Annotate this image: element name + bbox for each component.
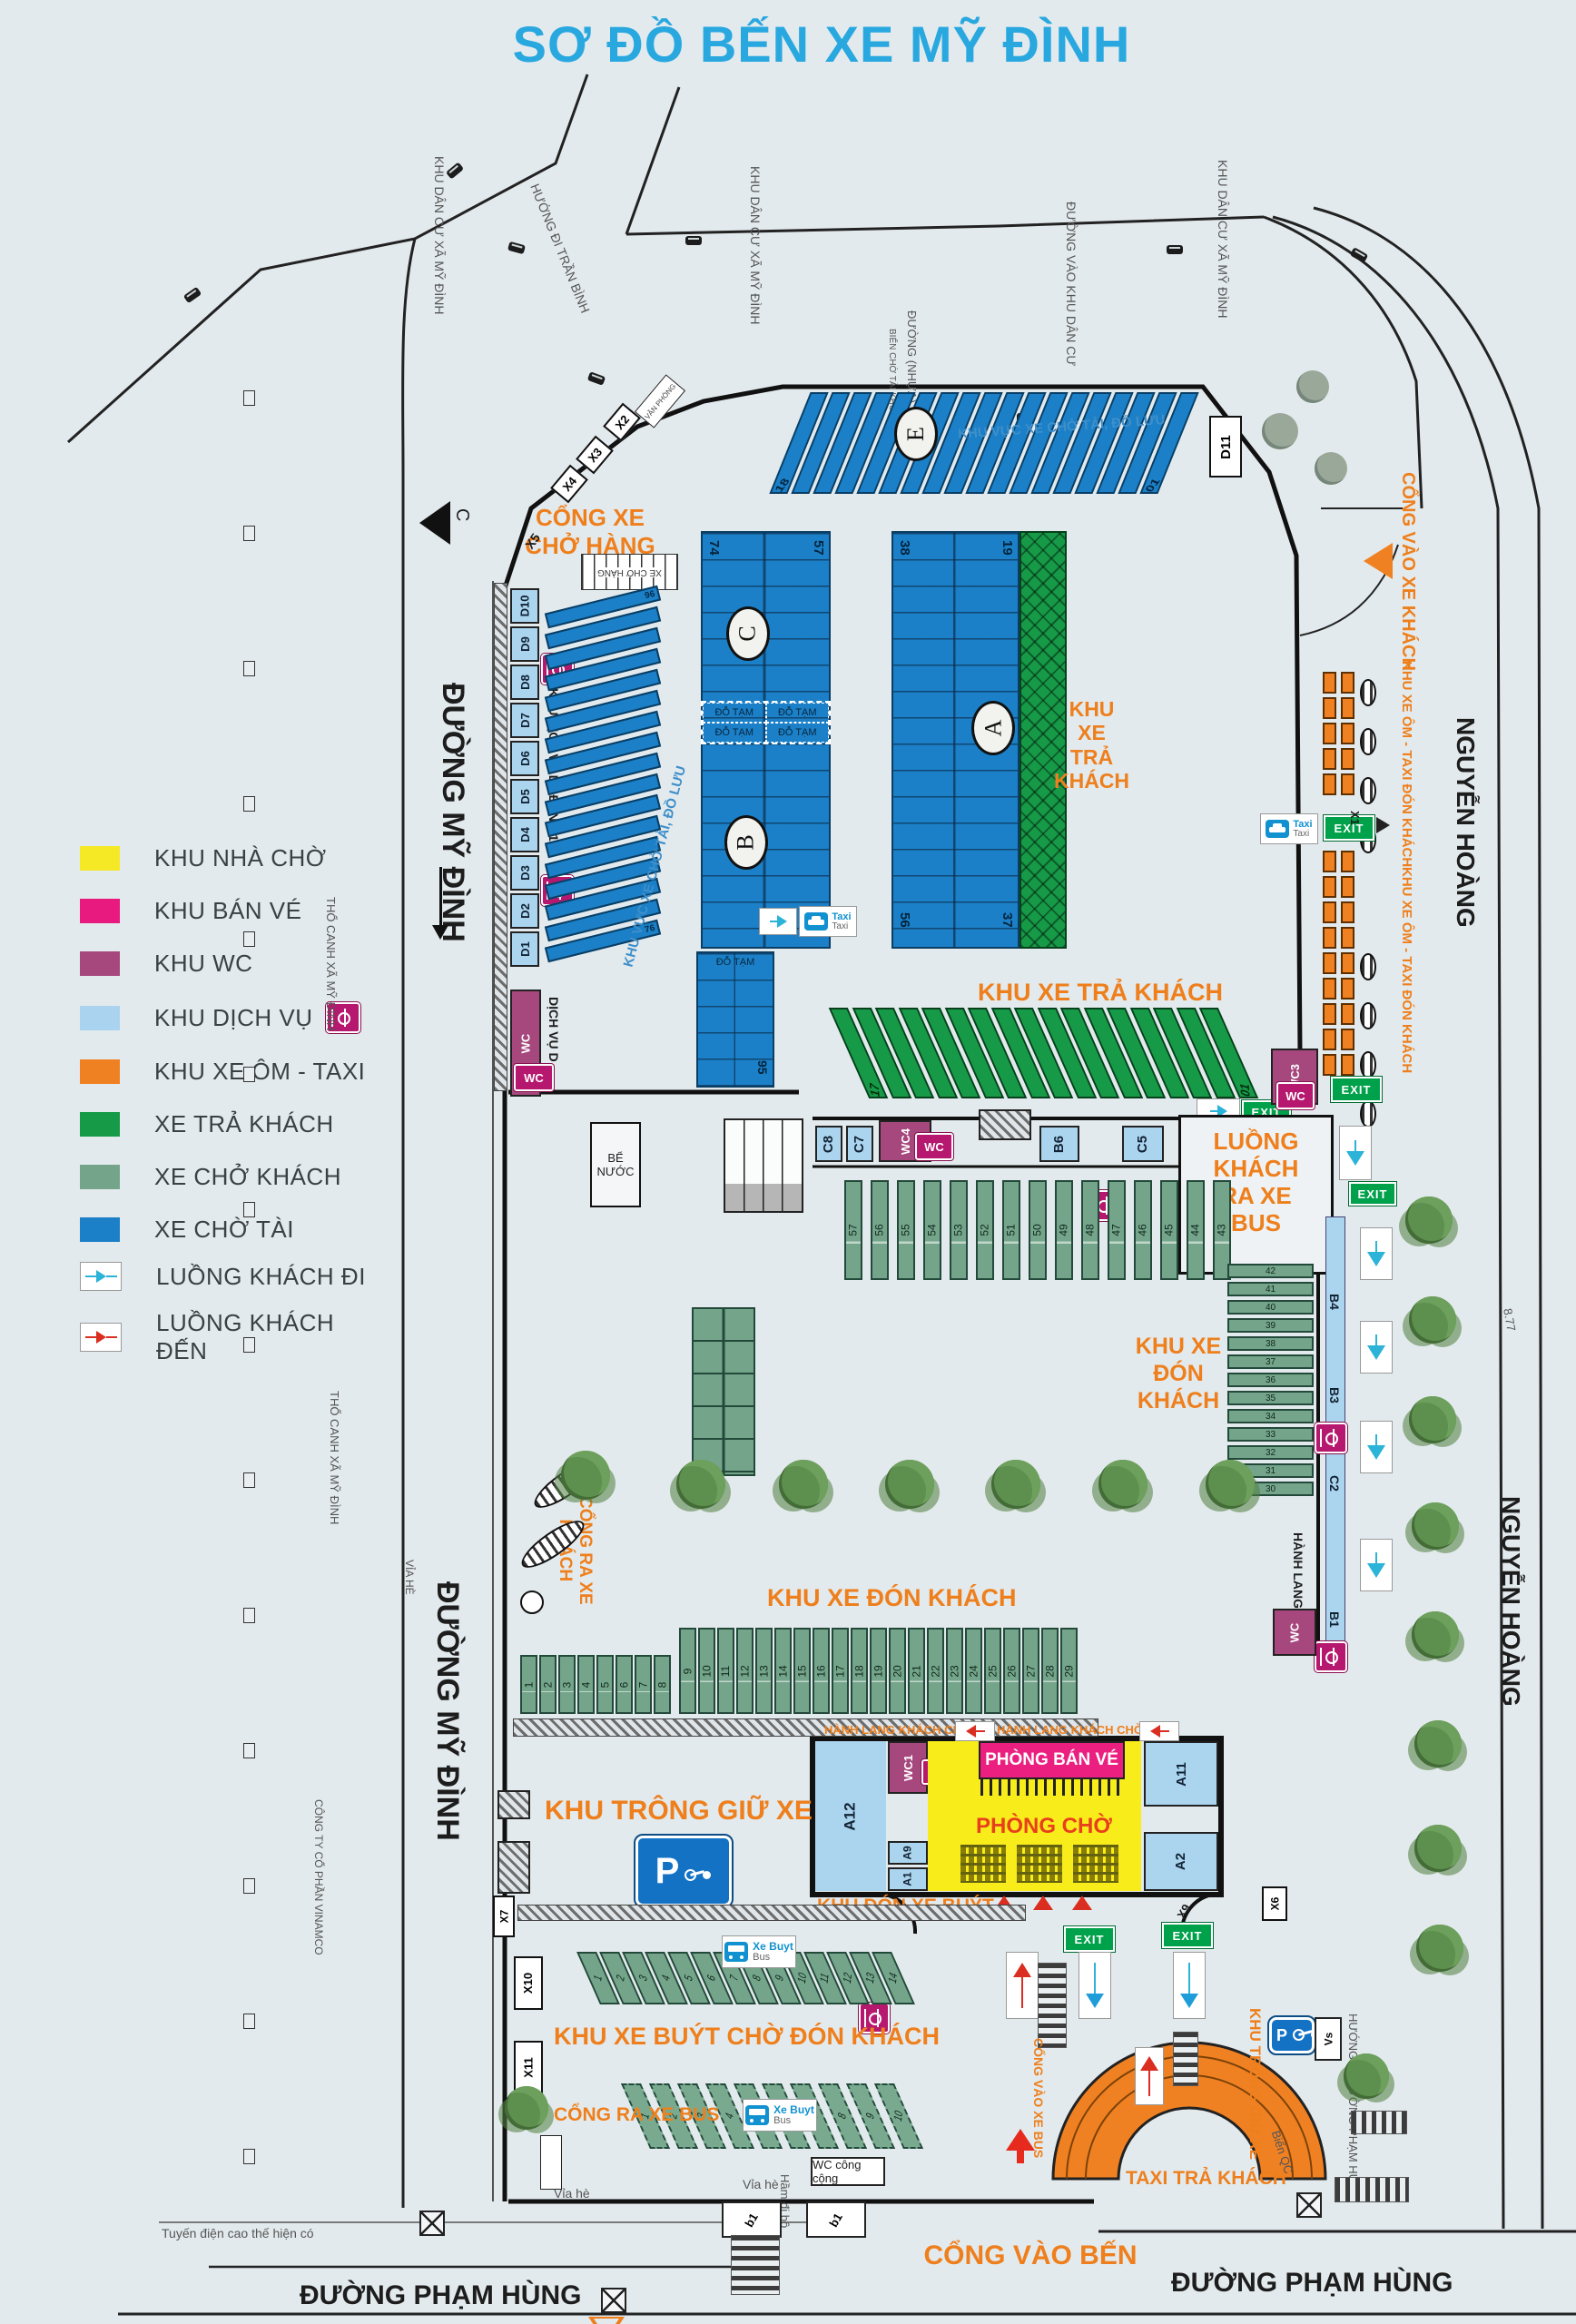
shed-grid [724,1118,803,1213]
wait-stall: 44 [1187,1180,1205,1280]
north-arrow-icon [419,501,450,545]
cargo-stalls: XE CHỞ HÀNG [581,554,678,590]
service-booth: D9 [510,626,539,662]
zone-circle-e: E [894,407,938,461]
tree-icon [505,2086,548,2130]
legend-item: XE CHỞ KHÁCH [80,1163,379,1191]
legend-swatch-xe-tra-khach [80,1112,120,1137]
gate-xbox [419,2211,445,2236]
wait-stall: 42 [1227,1264,1314,1278]
exit-arrow [1376,817,1390,833]
crosswalk [1335,2177,1409,2202]
seat-rows [1073,1845,1118,1883]
wc-badge: WC [514,1064,554,1091]
wait-stall: 32 [1227,1445,1314,1460]
cargo-gate-label: CỔNG XE CHỞ HÀNG [486,504,694,560]
legend-item: LUỒNG KHÁCH ĐI [80,1262,379,1291]
taxi-rank-bottom [1321,849,1357,1080]
tree-icon [561,1451,610,1500]
ticket-hall: PHÒNG BÁN VÉ [979,1741,1125,1779]
flow-go-marker-v [1360,1227,1393,1280]
flow-go-icon [80,1262,122,1291]
bus-icon [724,1942,748,1962]
legend-item: LUỒNG KHÁCH ĐẾN [80,1309,379,1365]
pickup-stall: 19 [870,1628,887,1714]
legend-swatch-khu-ban-ve [80,899,120,923]
tree-icon [1414,1720,1462,1768]
vs-box: Vs [1315,2017,1342,2061]
taxi-slot [1341,773,1354,795]
wait-stall: 38 [1227,1336,1314,1351]
pickup-stall: 9 [679,1628,696,1714]
pickup-stall: 10 [698,1628,715,1714]
street-asphalt: ĐƯỜNG (NHỰA) [905,310,919,403]
seat-rows [960,1845,1006,1883]
main-gate-label: CỔNG VÀO BẾN [917,2240,1144,2271]
exit-badge: EXIT [1064,1926,1115,1952]
wait-stall: 50 [1029,1180,1047,1280]
pickup-stall: 8 [654,1655,671,1714]
pickup-stall: 21 [908,1628,925,1714]
drop-zone-label-stack: KHU XE TRẢ KHÁCH [1049,697,1135,793]
kiosk-hatch [979,1109,1031,1140]
street-res-road: ĐƯỜNG VÀO KHU DÂN CƯ [1064,202,1079,366]
booth-b1: B1 [1327,1611,1342,1628]
taxi-slot [1341,978,1354,1000]
wait-stall: 41 [1227,1282,1314,1296]
wait-stall: 54 [923,1180,941,1280]
legend-item: KHU XE ÔM - TAXI [80,1058,379,1086]
pickup-stall: 12 [736,1628,754,1714]
entry-arrow [1006,2129,1035,2163]
sidewalk-label: Vỉa hè [554,2186,590,2201]
tree-icon [1414,1825,1462,1872]
wait-stall: 45 [1160,1180,1178,1280]
service-booth: D6 [510,741,539,776]
xeom-taxi-label-2: KHU XE ÔM - TAXI ĐÓN KHÁCH [1399,867,1414,1073]
gate-x10: X10 [514,1956,543,2010]
moto-park-label-right: KHU TRÔNG GIỮ XE [1246,2008,1264,2160]
booth-b6: B6 [1039,1126,1079,1162]
flow-come-marker [1139,1721,1179,1741]
taxi-slot [1341,927,1354,949]
tree-icon [676,1460,725,1509]
legend-item: XE TRẢ KHÁCH [80,1110,379,1138]
power-line-label: Tuyến điện cao thế hiện có [162,2226,314,2240]
street-my-dinh-2: ĐƯỜNG MỸ ĐÌNH [429,1581,465,1841]
platform-hatch [517,1905,1026,1921]
utility-poles [243,390,255,2164]
taxi-slot [1323,697,1336,719]
street-residential-2: KHU DÂN CƯ XÃ MỸ ĐÌNH [748,166,763,325]
vinamco-label: CÔNG TY CỔ PHẦN VINAMCO [312,1799,325,1955]
bus-sign: Xe BuytBus [722,1935,796,1968]
gate-x7: X7 [493,1896,515,1937]
gate-in-coach-arrow [1364,543,1393,579]
exit-badge: EXIT [1162,1923,1213,1948]
street-pham-hung-right: ĐƯỜNG PHẠM HÙNG [1171,2268,1453,2299]
booth-c8: C8 [815,1126,842,1162]
do-tam-label: ĐỖ TẠM [698,953,773,968]
tree-icon [1412,1611,1459,1659]
public-wc-box: WC công cộng [811,2157,885,2186]
street-nguyen-hoang-2: NGUYỄN HOÀNG [1496,1496,1525,1707]
booth-b3: B3 [1327,1387,1342,1403]
moto-parking-strip [1360,679,1376,1128]
legend-swatch-khu-wc [80,951,120,976]
north-c-label: C [451,508,472,521]
tree-icon [1409,1396,1456,1443]
wait-stall: 33 [1227,1427,1314,1442]
street-residential-1: KHU DÂN CƯ XÃ MỸ ĐÌNH [432,156,447,315]
wall-kiosk [497,1841,530,1894]
seat-rows [1017,1845,1062,1883]
taxi-slot [1341,876,1354,898]
block-cb-num-57: 57 [811,540,826,556]
taxi-slot [1323,1029,1336,1050]
flow-come-marker [955,1721,995,1741]
wc-badge: WC [915,1133,953,1160]
tree-icon [1412,1502,1459,1550]
drop-zone-label-line: KHU XE TRẢ KHÁCH [978,979,1223,1007]
do-tam-cell: ĐỖ TẠM [703,703,766,723]
taxi-slot [1341,672,1354,694]
d-service-column: D10D9D8D7D6D5D4D3D2D1 [510,588,539,970]
pickup-row-9-29: 9101112131415161718192021222324252627282… [679,1628,1079,1714]
corridor-label-side: HÀNH LANG [1291,1532,1305,1609]
wait-stall: 53 [950,1180,968,1280]
wait-stall: 48 [1081,1180,1099,1280]
block-a-num-19: 19 [1000,540,1015,556]
gate-xbox [1296,2192,1322,2218]
wait-stall: 39 [1227,1318,1314,1333]
flow-go-marker-v [1360,1421,1393,1473]
taxi-slot [1323,927,1336,949]
street-pham-hung-left: ĐƯỜNG PHẠM HÙNG [300,2280,581,2311]
booth-c2: C2 [1327,1475,1342,1492]
wait-stall: 37 [1227,1354,1314,1369]
car-icon [685,236,702,245]
tree-icon [779,1460,828,1509]
pickup-stall: 26 [1003,1628,1020,1714]
pickup-row-1-8: 12345678 [520,1655,673,1714]
pickup-zone-label-line: KHU XE ĐÓN KHÁCH [767,1584,1017,1612]
legend-swatch-khu-dich-vu [80,1006,120,1030]
room-a9: A9 [888,1841,928,1865]
wait-stall: 36 [1227,1373,1314,1387]
taxi-slot [1323,851,1336,872]
field-label-2: THỔ CANH XÃ MỸ ĐÌNH [328,1391,341,1524]
pickup-stall: 6 [616,1655,633,1714]
zone-circle-b: B [724,815,768,870]
pickup-stall: 1 [520,1655,537,1714]
wait-stall: 46 [1134,1180,1152,1280]
taxi-drop-label: TAXI TRẢ KHÁCH [1126,2168,1286,2190]
wc-side-block: WC [1273,1609,1316,1656]
wait-stall: 47 [1108,1180,1126,1280]
booth-c7: C7 [846,1126,873,1162]
moto-park-label: KHU TRÔNG GIỮ XE [545,1796,813,1827]
gate-x6: X6 [1262,1886,1287,1921]
west-wall-hatch [494,583,507,1091]
taxi-sign: TaxiTaxi [799,906,857,937]
pickup-stall: 3 [558,1655,576,1714]
zone-circle-a: A [971,701,1015,755]
taxi-slot [1341,1003,1354,1025]
do-tam-cell: ĐỖ TẠM [703,723,766,743]
taxi-slot [1341,748,1354,770]
moto-parking-sign: P [1269,2017,1315,2053]
door-mark [1072,1896,1092,1910]
b1-box: b1 [806,2201,866,2238]
street-nguyen-hoang-1: NGUYỄN HOÀNG [1451,717,1480,928]
taxi-slot [1341,1054,1354,1076]
taxi-rank-top [1321,670,1357,806]
road-direction-arrow [432,867,448,940]
tree-icon [991,1460,1040,1509]
flow-go-marker-v [1339,1126,1372,1180]
wait-stall: 40 [1227,1300,1314,1315]
taxi-slot [1323,1054,1336,1076]
pickup-stall: 18 [851,1628,868,1714]
taxi-sign: TaxiTaxi [1260,813,1318,844]
do-tam-cell: ĐỖ TẠM [766,723,830,743]
wall-kiosk [497,1790,530,1819]
wait-stall: 57 [844,1180,862,1280]
wait-stall: 34 [1227,1409,1314,1423]
pickup-stall: 25 [984,1628,1001,1714]
pickup-stall: 15 [793,1628,811,1714]
service-booth: D4 [510,817,539,852]
waiting-hall-label: PHÒNG CHỜ [976,1814,1112,1839]
taxi-slot [1323,901,1336,923]
taxi-slot [1323,978,1336,1000]
pickup-stall: 23 [946,1628,963,1714]
street-to-pham-hung: HƯỚNG ĐI ĐƯỜNG PHẠM HÙNG [1346,2014,1360,2201]
room-a12: A12 [815,1741,886,1891]
drop-row-green: 1701 [849,1008,1243,1098]
gate-out-bus-label: CỔNG RA XE BUS [554,2104,719,2126]
taxi-icon [804,912,828,931]
b1-box: b1 [722,2201,782,2238]
gate-in-coach-label: CỔNG VÀO XE KHÁCH [1397,472,1418,671]
pickup-stall: 2 [539,1655,557,1714]
exit-badge: EXIT [1349,1182,1396,1206]
tree-icon [1262,413,1298,449]
tree-icon [1315,452,1347,485]
taxi-slot [1323,952,1336,974]
d11-booth: D11 [1209,416,1242,478]
tree-icon [1344,2053,1389,2099]
flow-go-marker-v [1360,1539,1393,1591]
pickup-stall: 7 [635,1655,652,1714]
legend-swatch-xe-cho-khach [80,1165,120,1189]
room-a2: A2 [1144,1832,1218,1891]
do-tam-cell: ĐỖ TẠM [766,703,830,723]
service-booth: D3 [510,855,539,891]
wait-stall: 51 [1002,1180,1020,1280]
bus-icon [745,2105,769,2125]
taxi-slot [1323,773,1336,795]
station-map: SƠ ĐỒ BẾN XE MỸ ĐÌNH KHU NHÀ CHỜ KHU BÁN… [0,0,1576,2324]
gate-post-icon [520,1590,544,1614]
taxi-icon [1266,820,1289,838]
service-booth: D5 [510,779,539,814]
legend-swatch-xe-cho-tai [80,1217,120,1242]
flow-come-icon [80,1323,122,1352]
pickup-stall: 13 [755,1628,773,1714]
pickup-stall: 5 [596,1655,614,1714]
service-booth: D7 [510,703,539,738]
do-tam-cells: ĐỖ TẠM ĐỖ TẠM ĐỖ TẠM ĐỖ TẠM [701,701,831,744]
gate-x1: X1 [1348,811,1362,825]
room-a1: A1 [888,1867,928,1891]
service-booth: D10 [510,588,539,624]
flow-come-marker-v [1006,1952,1039,2019]
food-icon [1315,1423,1347,1453]
street-residential-3: KHU DÂN CƯ XÃ MỸ ĐÌNH [1216,160,1230,319]
pickup-stall: 17 [832,1628,849,1714]
booth-b4: B4 [1327,1294,1342,1310]
motorcycle-icon [1293,2030,1307,2041]
ticket-counters [980,1779,1119,1796]
taxi-slot [1341,1029,1354,1050]
pickup-stall: 24 [965,1628,982,1714]
kiosk-box [540,2135,562,2190]
flow-go-marker-v [1173,1952,1206,2019]
pickup-stall: 11 [717,1628,734,1714]
wait-stall: 35 [1227,1391,1314,1405]
pickup-stall: 27 [1022,1628,1039,1714]
tree-icon [885,1460,934,1509]
legend-item: KHU NHÀ CHỜ [80,844,379,872]
yield-mark [588,2317,625,2324]
taxi-slot [1323,723,1336,744]
flow-go-marker [759,908,797,935]
door-mark [1033,1896,1053,1910]
crosswalk [1351,2111,1407,2134]
flow-come-marker-v [1135,2047,1164,2105]
taxi-slot [1341,952,1354,974]
xeom-taxi-label-1: KHU XE ÔM - TAXI ĐÓN KHÁCH [1399,661,1414,867]
booth-c5: C5 [1122,1126,1164,1162]
taxi-slot [1323,748,1336,770]
wait-row-57-43: 575655545352515049484746454443 [844,1180,1239,1280]
block-a-num-38: 38 [897,540,912,556]
corridor-label: HÀNH LANG KHÁCH CHỜ XE [997,1723,1163,1737]
tree-icon [1296,370,1329,403]
taxi-slot [1341,697,1354,719]
service-booth: D8 [510,665,539,700]
wait-block-grid [692,1307,755,1476]
service-booth: D2 [510,893,539,929]
crosswalk [1173,2032,1198,2086]
sidewalk-label-v: VỈA HÈ [403,1560,416,1595]
pickup-stall: 4 [577,1655,595,1714]
motorcycle-icon [685,1861,712,1881]
taxi-slot [1323,876,1336,898]
car-icon [1167,245,1183,254]
service-d-label: DỊCH VỤ D [547,997,561,1062]
service-booth: D1 [510,931,539,967]
strip-num-95: 95 [755,1060,770,1075]
taxi-slot [1341,901,1354,923]
taxi-slot [1341,723,1354,744]
pickup-zone-label-stack: KHU XE ĐÓN KHÁCH [1124,1333,1233,1414]
wait-stall: 49 [1055,1180,1073,1280]
tree-icon [1405,1196,1453,1244]
exit-badge: EXIT [1331,1077,1382,1102]
tree-icon [1206,1460,1255,1509]
pickup-stall: 28 [1041,1628,1059,1714]
truck-row-e: 1801 [790,392,1182,494]
pickup-stall: 14 [774,1628,792,1714]
moto-parking-sign: P [635,1836,732,1906]
taxi-slot [1323,672,1336,694]
taxi-slot [1323,1003,1336,1025]
pickup-stall: 29 [1060,1628,1078,1714]
tree-icon [1098,1460,1148,1509]
pickup-stall: 20 [889,1628,906,1714]
flow-go-marker-v [1360,1321,1393,1374]
wc-badge: WC [1276,1082,1315,1109]
taxi-slot [1341,851,1354,872]
tree-icon [1409,1296,1456,1344]
flow-go-marker-v [1079,1952,1111,2019]
wait-stall: 55 [897,1180,915,1280]
block-a-num-37: 37 [1000,912,1015,928]
legend-swatch-khu-nha-cho [80,846,120,871]
field-label-1: THỔ CANH XÃ MỸ ĐÌNH [324,897,338,1030]
tree-icon [1416,1925,1463,1972]
zone-circle-c: C [726,606,770,661]
room-a11: A11 [1144,1741,1218,1807]
sidewalk-label: Vỉa hè [743,2177,779,2191]
underpass-crosswalk [731,2235,780,2295]
legend-item: XE CHỜ TÀI [80,1216,379,1244]
block-a-num-56: 56 [897,912,912,928]
wait-stall: 56 [871,1180,889,1280]
block-cb-num-74: 74 [706,540,722,556]
legend-swatch-xe-om-taxi [80,1059,120,1084]
water-tank: BỂNƯỚC [590,1122,641,1207]
page-title: SƠ ĐỒ BẾN XE MỸ ĐÌNH [300,15,1344,74]
bus-wait-label: KHU XE BUÝT CHỜ ĐÓN KHÁCH [554,2023,940,2051]
pickup-stall: 22 [927,1628,944,1714]
crosswalk [1038,1963,1067,2048]
food-icon [1315,1641,1347,1672]
bus-sign: Xe BuytBus [743,2099,817,2132]
wait-stall: 52 [976,1180,994,1280]
pickup-stall: 16 [813,1628,830,1714]
gate-xbox [601,2288,626,2313]
